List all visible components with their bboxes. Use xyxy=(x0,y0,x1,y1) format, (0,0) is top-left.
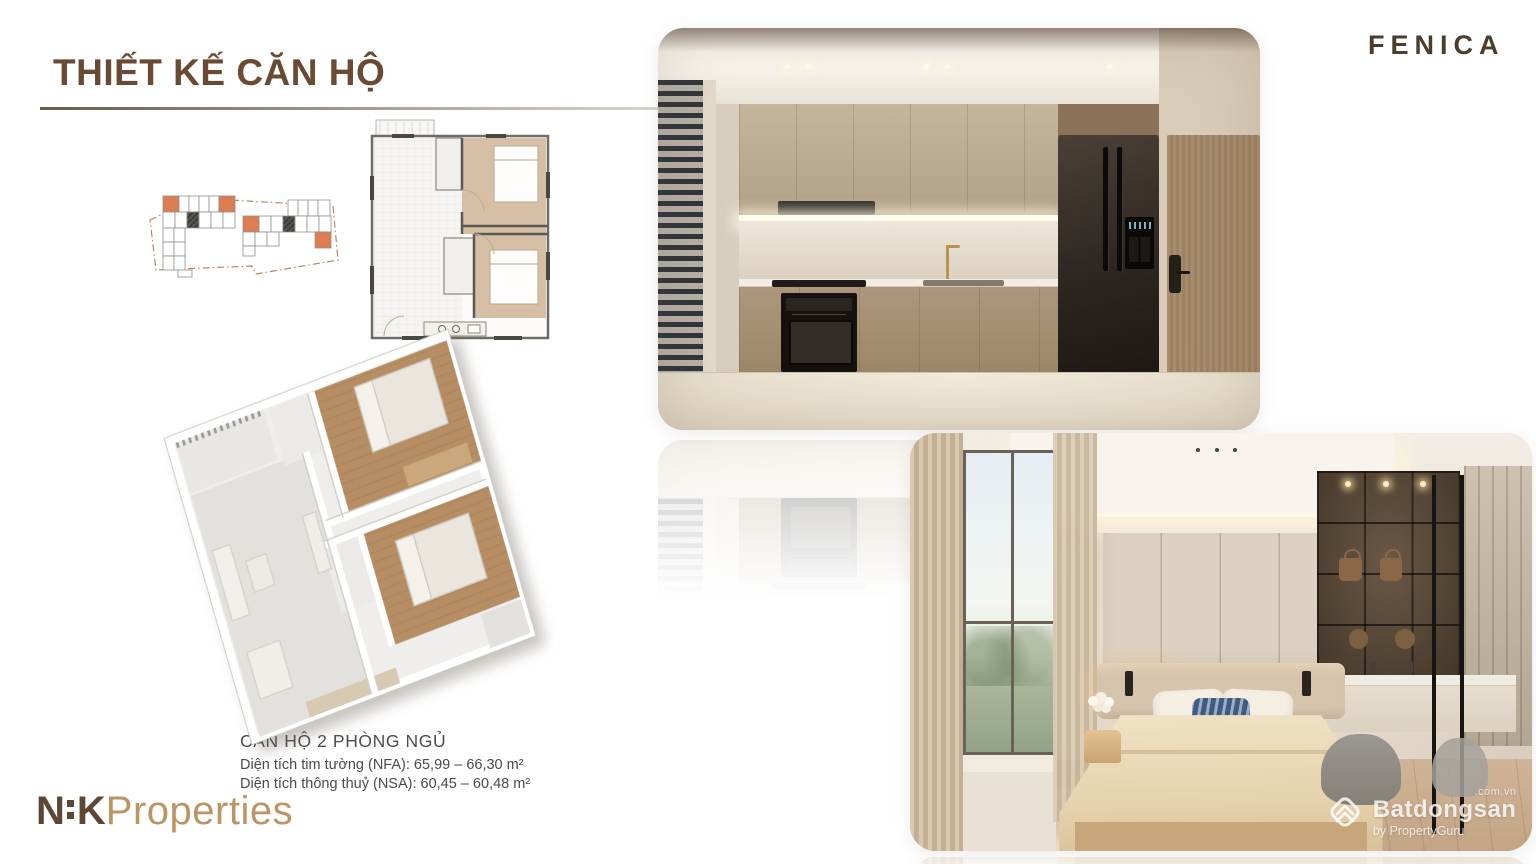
site-key-plan xyxy=(138,176,348,290)
unit-area-nfa: Diện tích tim tường (NFA): 65,99 – 66,30… xyxy=(240,757,524,773)
balcony xyxy=(376,120,434,136)
headboard-sconce xyxy=(1125,671,1134,696)
watermark-domain: .com.vn xyxy=(1373,786,1517,798)
nk-logo-properties: Properties xyxy=(106,789,293,834)
nk-logo-n: N xyxy=(36,789,65,834)
bedside-table xyxy=(1084,730,1121,763)
floor-plan-3d xyxy=(150,319,549,756)
site-right-wing xyxy=(243,200,331,256)
display-bag xyxy=(1339,558,1361,581)
fenica-brand-logo: FENICA xyxy=(1368,30,1505,61)
wall-under-window xyxy=(963,772,1056,851)
window-mullion xyxy=(963,621,1056,624)
batdongsan-watermark: .com.vn Batdongsan by PropertyGuru xyxy=(1325,786,1517,838)
curtain-left xyxy=(910,433,963,851)
shelf-spotlight xyxy=(1383,481,1389,487)
display-plate xyxy=(1395,629,1415,648)
ceiling-dot xyxy=(1196,448,1200,452)
site-left-wing xyxy=(163,196,235,277)
batdongsan-house-icon xyxy=(1325,792,1365,832)
vanity-counter xyxy=(1317,675,1516,686)
nk-colon-mark xyxy=(67,800,74,819)
page-title: THIẾT KẾ CĂN HỘ xyxy=(53,52,385,94)
bathroom-1 xyxy=(436,138,462,190)
ceiling-dot xyxy=(1215,448,1219,452)
display-plate xyxy=(1349,629,1369,648)
bathroom-2 xyxy=(444,238,474,294)
display-bag xyxy=(1380,558,1402,581)
photo-top-shadow xyxy=(658,28,1260,52)
floor-plan-2d xyxy=(366,116,554,346)
vanity-bottle xyxy=(1370,661,1376,676)
nk-properties-logo: N K Properties xyxy=(36,789,293,834)
slide: THIẾT KẾ CĂN HỘ FENICA xyxy=(0,0,1536,864)
kitchen-photo xyxy=(658,28,1260,430)
vanity-drawers xyxy=(1327,686,1517,732)
photo-vignette xyxy=(658,28,1260,430)
nk-logo-k: K xyxy=(77,789,106,834)
bedroom-photo: .com.vn Batdongsan by PropertyGuru xyxy=(910,433,1532,851)
headboard-sconce xyxy=(1302,671,1311,696)
bedroom-window xyxy=(963,450,1056,755)
watermark-name: Batdongsan xyxy=(1373,798,1517,822)
curtain-inner xyxy=(1053,433,1097,822)
window-sill xyxy=(963,755,1056,772)
vanity-bottle xyxy=(1408,661,1414,676)
watermark-byline: by PropertyGuru xyxy=(1373,824,1517,838)
title-underline xyxy=(40,107,660,110)
bed-base xyxy=(1075,822,1367,851)
